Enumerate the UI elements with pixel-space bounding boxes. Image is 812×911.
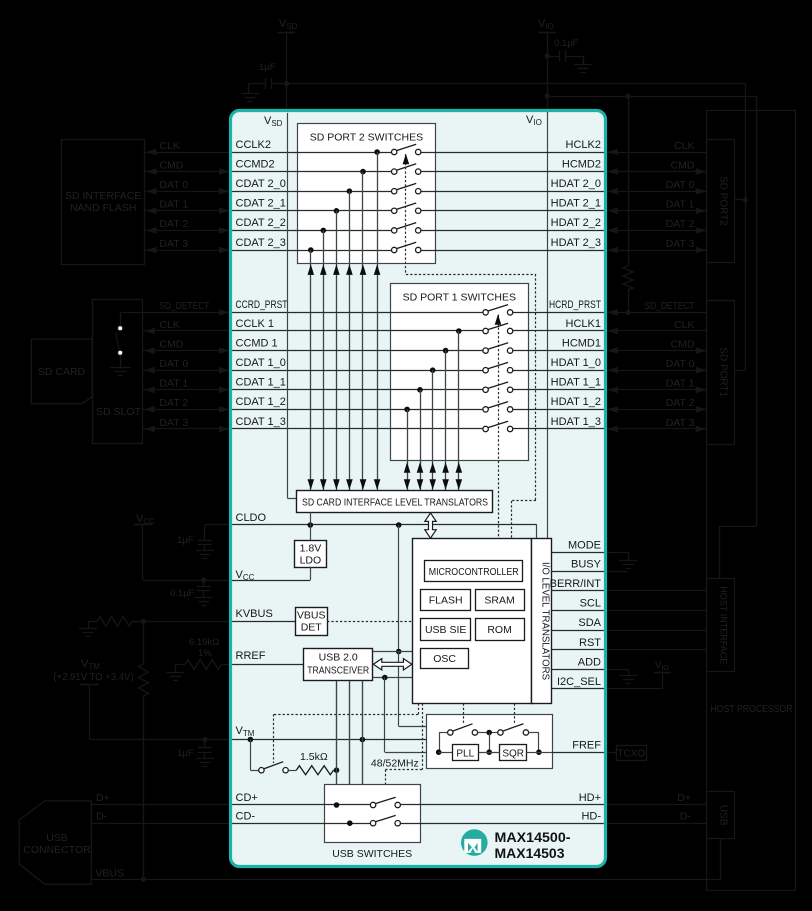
svg-text:BERR/INT: BERR/INT	[550, 578, 602, 590]
svg-text:6.19kΩ: 6.19kΩ	[189, 637, 219, 648]
svg-text:SRAM: SRAM	[484, 595, 514, 607]
svg-text:D-: D-	[96, 811, 108, 823]
svg-text:1µF: 1µF	[177, 748, 194, 759]
svg-text:USB: USB	[46, 832, 68, 844]
svg-text:DAT 1: DAT 1	[666, 199, 695, 211]
svg-text:DAT 3: DAT 3	[666, 417, 695, 429]
svg-text:DAT 0: DAT 0	[666, 358, 695, 370]
svg-text:D-: D-	[680, 811, 692, 823]
svg-text:HDAT 2_0: HDAT 2_0	[551, 178, 601, 190]
svg-text:DET: DET	[301, 621, 323, 633]
svg-text:0.1µF: 0.1µF	[170, 588, 195, 599]
svg-text:CLK: CLK	[159, 319, 179, 331]
svg-text:1.5kΩ: 1.5kΩ	[300, 751, 328, 763]
svg-text:TRANSCEIVER: TRANSCEIVER	[307, 664, 369, 676]
svg-text:HCLK1: HCLK1	[566, 318, 601, 330]
svg-text:CONNECTOR: CONNECTOR	[23, 844, 91, 856]
svg-text:RST: RST	[579, 637, 601, 649]
svg-text:1.8V: 1.8V	[300, 543, 322, 555]
svg-text:CCLK2: CCLK2	[236, 139, 271, 151]
svg-text:CLK: CLK	[674, 319, 694, 331]
svg-text:NAND FLASH: NAND FLASH	[70, 202, 137, 214]
svg-text:ADD: ADD	[578, 657, 601, 669]
svg-text:CD+: CD+	[236, 792, 258, 804]
svg-text:ROM: ROM	[487, 624, 512, 636]
svg-text:DAT 2: DAT 2	[159, 397, 188, 409]
svg-text:1µF: 1µF	[177, 535, 194, 546]
svg-text:RREF: RREF	[236, 650, 266, 662]
svg-text:CDAT 2_1: CDAT 2_1	[236, 198, 286, 210]
svg-text:HOST PROCESSOR: HOST PROCESSOR	[711, 703, 793, 715]
svg-text:I2C_SEL: I2C_SEL	[557, 676, 601, 688]
svg-text:SD SLOT: SD SLOT	[96, 406, 142, 418]
svg-text:DAT 3: DAT 3	[666, 238, 695, 250]
svg-text:TCXO: TCXO	[617, 748, 645, 759]
svg-text:MICROCONTROLLER: MICROCONTROLLER	[429, 566, 519, 578]
svg-text:CLDO: CLDO	[236, 512, 267, 524]
svg-text:SD PORT2: SD PORT2	[718, 176, 729, 226]
svg-text:HDAT 1_2: HDAT 1_2	[551, 396, 601, 408]
svg-text:SD PORT1: SD PORT1	[718, 347, 729, 397]
svg-text:SD PORT 1 SWITCHES: SD PORT 1 SWITCHES	[403, 292, 516, 304]
svg-text:DAT 1: DAT 1	[666, 378, 695, 390]
svg-text:SQR: SQR	[502, 748, 524, 759]
svg-text:D+: D+	[96, 792, 110, 804]
svg-text:USB SWITCHES: USB SWITCHES	[332, 848, 412, 860]
svg-text:KVBUS: KVBUS	[236, 608, 273, 620]
svg-text:CDAT 2_0: CDAT 2_0	[236, 178, 286, 190]
svg-text:MODE: MODE	[568, 540, 601, 552]
svg-text:DAT 0: DAT 0	[159, 358, 188, 370]
svg-text:USB: USB	[718, 805, 729, 826]
svg-text:(+2.91V TO +3.4V): (+2.91V TO +3.4V)	[54, 672, 134, 683]
svg-text:HDAT 1_0: HDAT 1_0	[551, 357, 601, 369]
svg-text:HDAT 2_1: HDAT 2_1	[551, 198, 601, 210]
svg-text:1µF: 1µF	[259, 62, 276, 73]
svg-text:DAT 2: DAT 2	[666, 218, 695, 230]
svg-text:USB 2.0: USB 2.0	[319, 651, 358, 663]
svg-text:HDAT 1_3: HDAT 1_3	[551, 416, 601, 428]
svg-text:CMD: CMD	[671, 338, 695, 350]
svg-text:DAT 2: DAT 2	[159, 218, 188, 230]
svg-text:CCMD 1: CCMD 1	[236, 337, 278, 349]
svg-text:I/O LEVEL TRANSLATORS: I/O LEVEL TRANSLATORS	[539, 562, 550, 680]
svg-text:SD_DETECT: SD_DETECT	[645, 300, 695, 312]
svg-text:D+: D+	[677, 792, 691, 804]
svg-text:CDAT 1_1: CDAT 1_1	[236, 377, 286, 389]
svg-text:CLK: CLK	[159, 140, 179, 152]
svg-text:DAT 1: DAT 1	[159, 378, 188, 390]
svg-text:1%: 1%	[198, 648, 212, 659]
svg-text:HD-: HD-	[581, 810, 601, 822]
svg-text:SD CARD: SD CARD	[38, 366, 86, 378]
svg-text:VBUS: VBUS	[95, 868, 124, 880]
svg-text:HD+: HD+	[579, 792, 601, 804]
svg-text:HCMD2: HCMD2	[562, 158, 601, 170]
svg-text:0.1µF: 0.1µF	[554, 38, 579, 49]
svg-text:MAX14500-: MAX14500-	[495, 830, 571, 845]
svg-text:SD PORT 2 SWITCHES: SD PORT 2 SWITCHES	[310, 132, 423, 144]
svg-text:CCLK 1: CCLK 1	[236, 318, 275, 330]
svg-text:SD CARD INTERFACE LEVEL TRANSL: SD CARD INTERFACE LEVEL TRANSLATORS	[302, 497, 488, 509]
svg-text:HCRD_PRST: HCRD_PRST	[549, 299, 601, 311]
svg-text:BUSY: BUSY	[571, 558, 602, 570]
svg-text:MAX14503: MAX14503	[495, 846, 566, 861]
svg-text:OSC: OSC	[433, 653, 456, 665]
svg-text:SDA: SDA	[578, 617, 601, 629]
svg-text:DAT 3: DAT 3	[159, 238, 188, 250]
svg-text:PLL: PLL	[456, 748, 474, 759]
svg-text:SD_DETECT: SD_DETECT	[159, 300, 209, 312]
svg-text:LDO: LDO	[300, 555, 322, 567]
svg-text:CDAT 2_3: CDAT 2_3	[236, 237, 286, 249]
svg-text:HDAT 2_3: HDAT 2_3	[551, 237, 601, 249]
svg-text:CCMD2: CCMD2	[236, 158, 275, 170]
svg-text:SCL: SCL	[580, 598, 601, 610]
svg-text:HCLK2: HCLK2	[566, 139, 601, 151]
svg-text:CMD: CMD	[671, 159, 695, 171]
svg-text:CDAT 1_0: CDAT 1_0	[236, 357, 286, 369]
svg-text:DAT 3: DAT 3	[159, 417, 188, 429]
svg-text:DAT 0: DAT 0	[666, 179, 695, 191]
svg-text:DAT 1: DAT 1	[159, 199, 188, 211]
svg-text:48/52MHz: 48/52MHz	[371, 758, 419, 770]
svg-text:CDAT 1_3: CDAT 1_3	[236, 416, 286, 428]
svg-text:HDAT 2_2: HDAT 2_2	[551, 217, 601, 229]
svg-text:FLASH: FLASH	[429, 595, 463, 607]
svg-text:DAT 0: DAT 0	[159, 179, 188, 191]
svg-text:HCMD1: HCMD1	[562, 337, 601, 349]
svg-text:CCRD_PRST: CCRD_PRST	[236, 299, 288, 311]
svg-text:VBUS: VBUS	[297, 609, 326, 621]
svg-text:CMD: CMD	[159, 338, 183, 350]
svg-text:USB SIE: USB SIE	[425, 624, 466, 636]
svg-text:SD INTERFACE: SD INTERFACE	[65, 190, 141, 202]
svg-text:FREF: FREF	[572, 740, 601, 752]
svg-text:CMD: CMD	[159, 159, 183, 171]
svg-text:CDAT 2_2: CDAT 2_2	[236, 217, 286, 229]
svg-text:CD-: CD-	[236, 810, 256, 822]
svg-text:CDAT 1_2: CDAT 1_2	[236, 396, 286, 408]
svg-text:HOST INTERFACE: HOST INTERFACE	[717, 586, 728, 664]
svg-text:CLK: CLK	[674, 140, 694, 152]
svg-text:HDAT 1_1: HDAT 1_1	[551, 377, 601, 389]
svg-text:DAT 2: DAT 2	[666, 397, 695, 409]
